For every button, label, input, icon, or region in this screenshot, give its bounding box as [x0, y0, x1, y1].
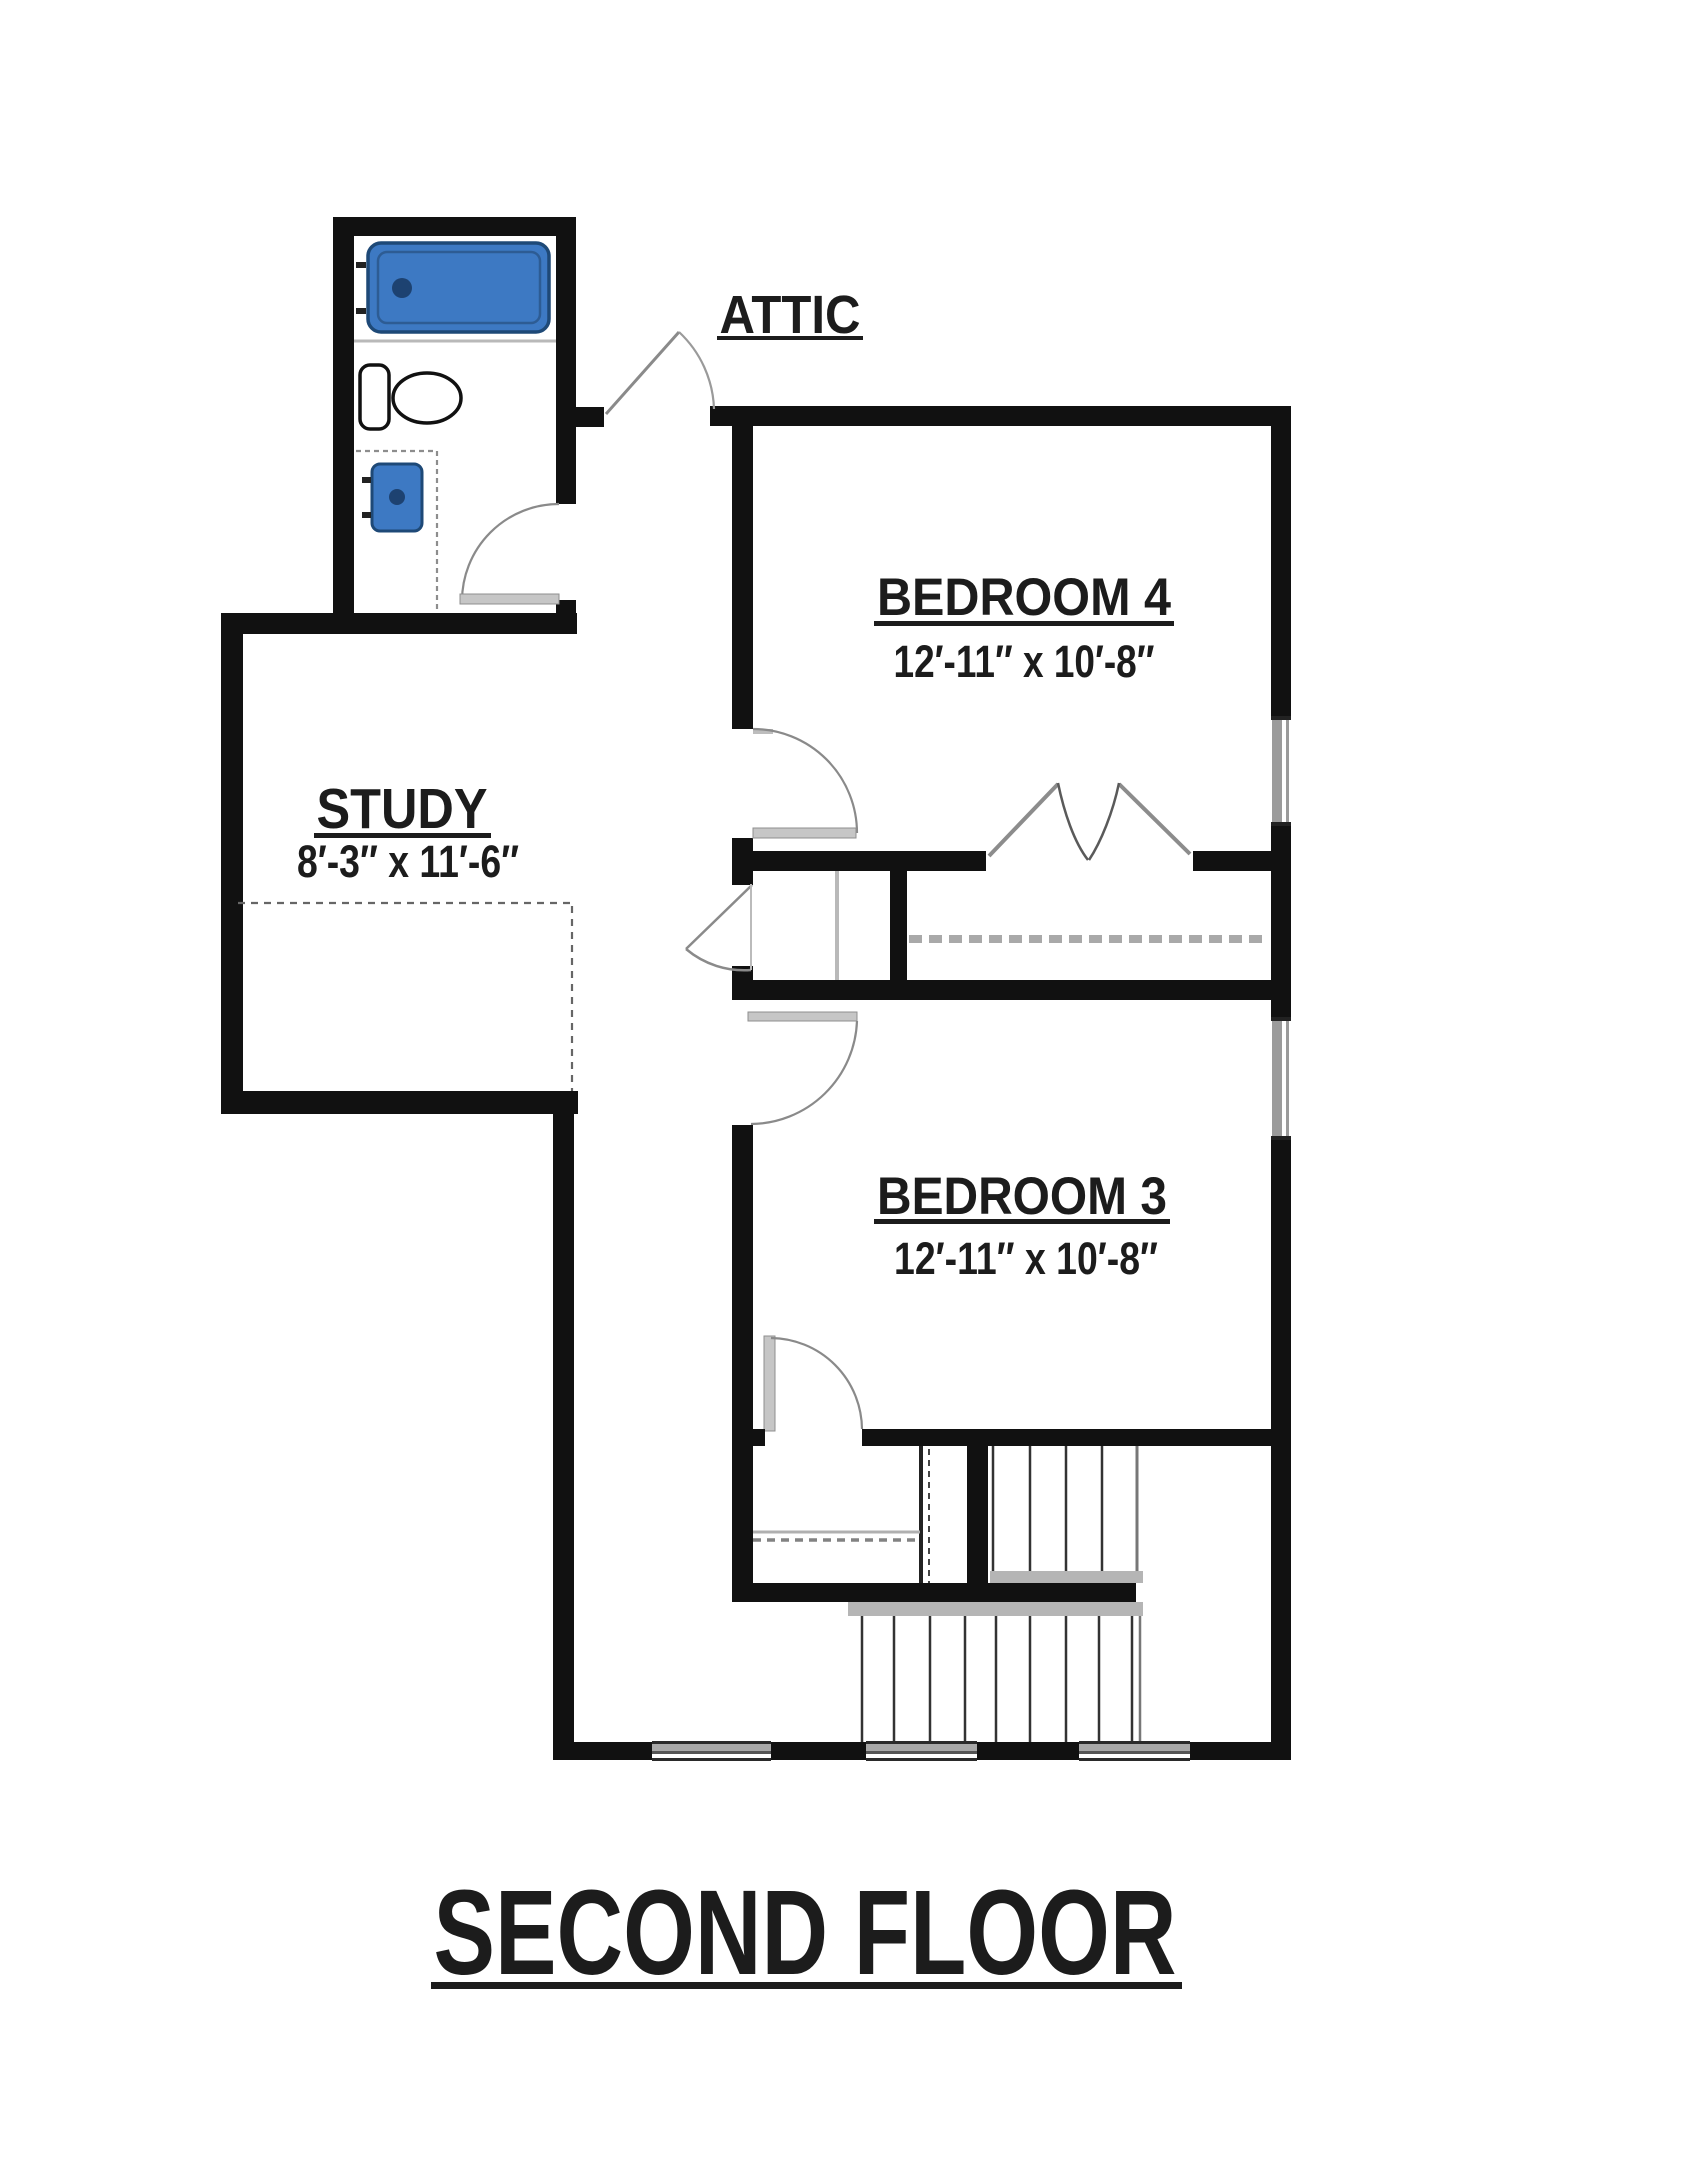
svg-text:STUDY: STUDY — [317, 777, 488, 841]
svg-text:8′-3″ x 11′-6″: 8′-3″ x 11′-6″ — [297, 836, 519, 887]
svg-text:12′-11″ x 10′-8″: 12′-11″ x 10′-8″ — [894, 636, 1155, 687]
svg-text:BEDROOM 4: BEDROOM 4 — [877, 568, 1171, 627]
svg-text:SECOND FLOOR: SECOND FLOOR — [434, 1864, 1177, 2000]
svg-text:12′-11″ x 10′-8″: 12′-11″ x 10′-8″ — [894, 1233, 1158, 1284]
svg-text:BEDROOM 3: BEDROOM 3 — [877, 1167, 1167, 1226]
